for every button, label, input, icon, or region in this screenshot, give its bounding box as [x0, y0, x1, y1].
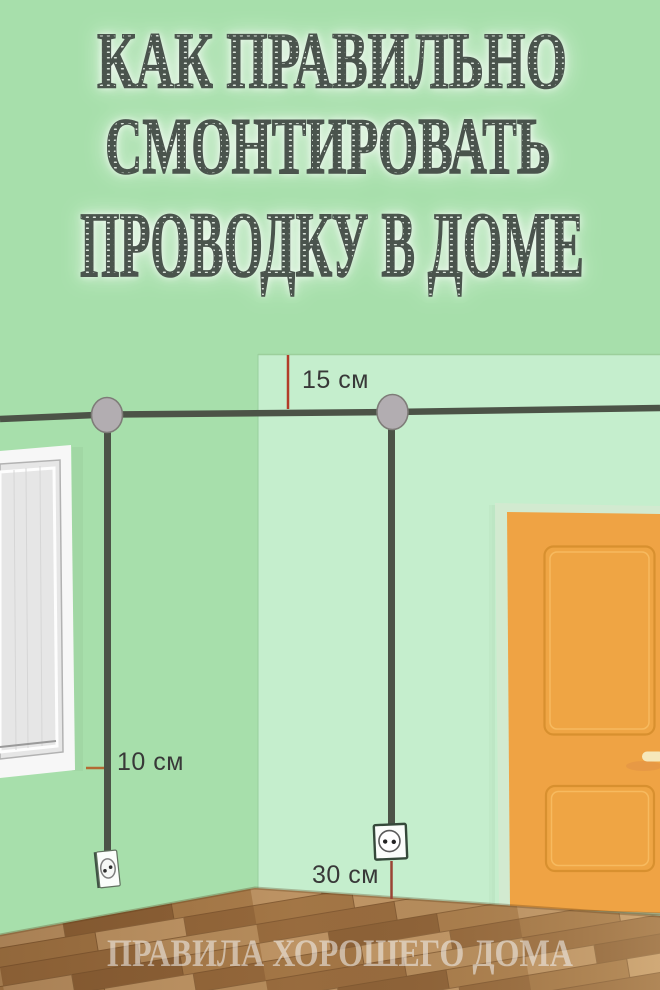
- svg-text:СМОНТИРОВАТЬ: СМОНТИРОВАТЬ: [105, 103, 551, 191]
- svg-text:КАК ПРАВИЛЬНО: КАК ПРАВИЛЬНО: [97, 18, 567, 106]
- svg-text:ПРОВОДКУ В ДОМЕ: ПРОВОДКУ В ДОМЕ: [80, 194, 584, 297]
- svg-text:ПРАВИЛА ХОРОШЕГО ДОМА: ПРАВИЛА ХОРОШЕГО ДОМА: [107, 932, 573, 975]
